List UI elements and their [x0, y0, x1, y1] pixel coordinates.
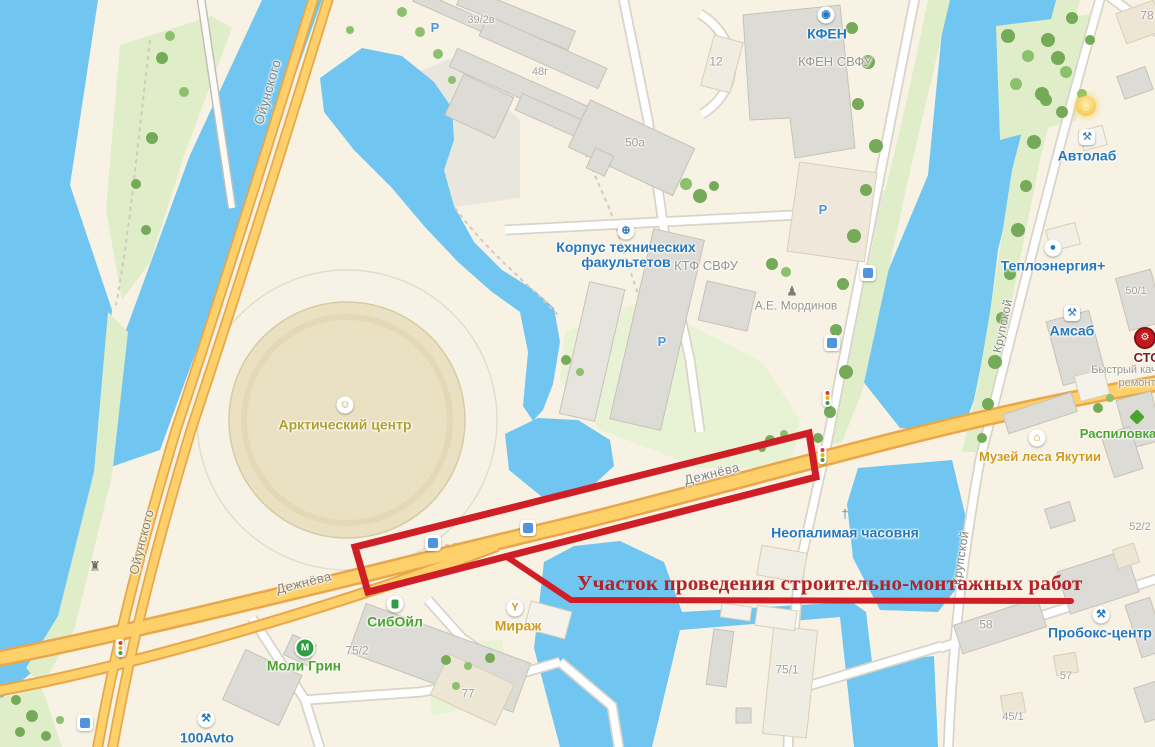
construction-annotation-label: Участок проведения строительно-монтажных…	[577, 572, 1077, 594]
map-canvas[interactable]	[0, 0, 1155, 747]
map-root[interactable]: ◉⊕☼⚒●⚒⚙⌂†YМ⚒⚒☺♟♜ ОйунскогоОйунскогоДежнё…	[0, 0, 1155, 747]
